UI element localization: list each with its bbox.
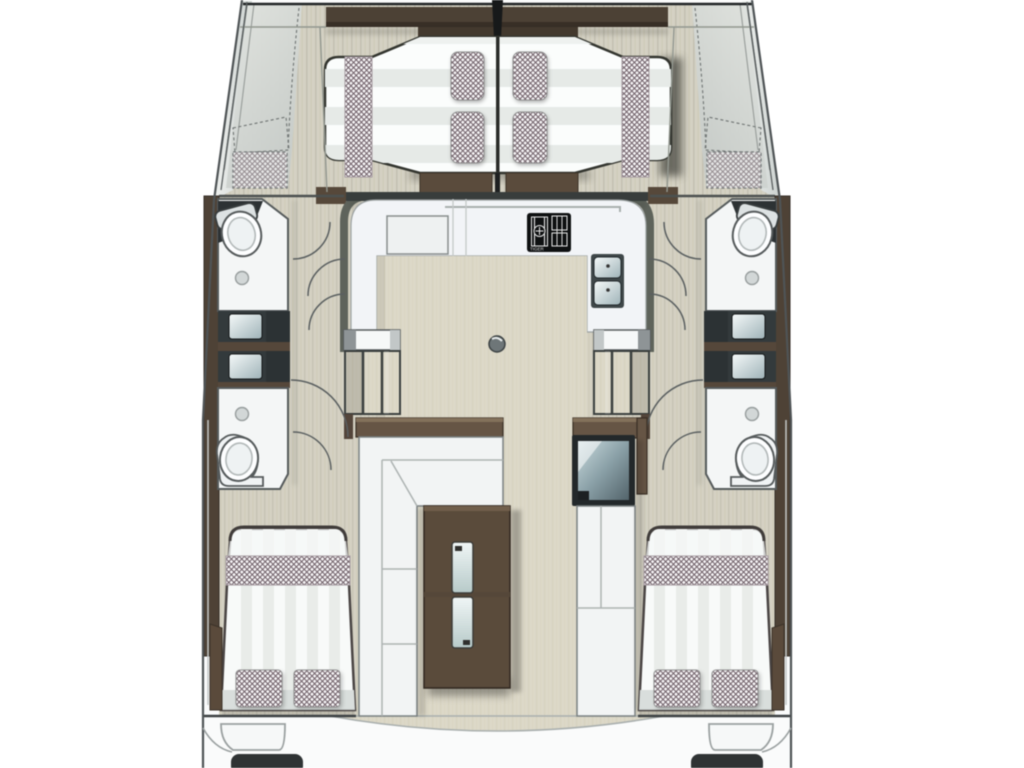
svg-text:TIGER: TIGER — [530, 247, 545, 252]
